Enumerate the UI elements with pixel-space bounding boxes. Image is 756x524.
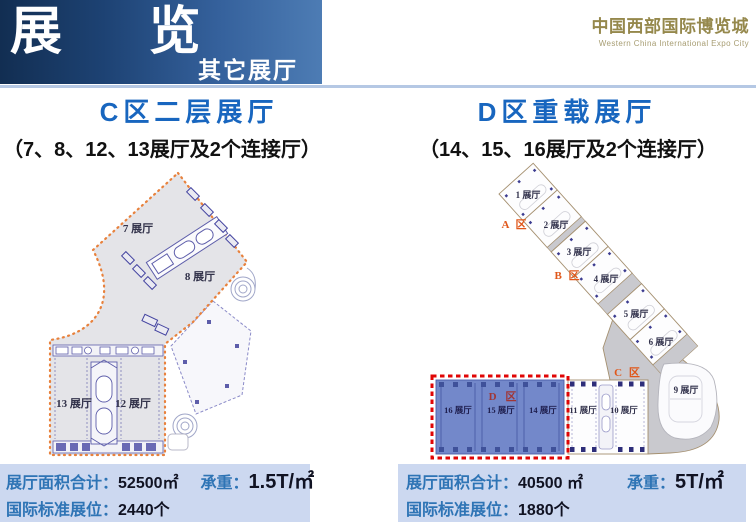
d-stats-line2: 国际标准展位：1880个: [406, 499, 746, 523]
d-load-value: 5T/㎡: [675, 471, 724, 493]
hall9-label: 9 展厅: [674, 385, 699, 395]
d-zone-floorplan-map: 1 展厅 2 展厅 3 展厅 4 展厅 5 展厅 6 展厅 9 展厅 10 展厅…: [420, 162, 750, 462]
hall6-label: 6 展厅: [649, 337, 674, 347]
page-subtitle-tab: 其它展厅: [198, 51, 298, 85]
d-zone-subtitle: （14、15、16展厅及2个连接厅）: [386, 133, 750, 162]
hall2-label: 2 展厅: [544, 220, 569, 230]
hall16-label: 16 展厅: [444, 405, 472, 415]
logo-english-name: Western China International Expo City: [592, 39, 750, 48]
hall12-label: 12 展厅: [115, 397, 151, 410]
d-area-label: 展厅面积合计：: [406, 475, 518, 492]
c-stats-line1: 展厅面积合计：52500㎡承重：1.5T/㎡: [6, 470, 310, 496]
d-stats-line1: 展厅面积合计：40500 ㎡承重：5T/㎡: [406, 470, 746, 496]
hall11-label: 11 展厅: [569, 405, 597, 415]
zone-c-label: C 区: [614, 366, 642, 379]
d-booth-label: 国际标准展位：: [406, 502, 518, 519]
d-zone-title: D区重载展厅: [378, 92, 756, 129]
c-area-value: 52500㎡: [118, 475, 179, 492]
c-zone-title: C区二层展厅: [0, 92, 378, 129]
d-zone-stats-bar: 展厅面积合计：40500 ㎡承重：5T/㎡ 国际标准展位：1880个: [398, 464, 746, 522]
hall5-label: 5 展厅: [624, 309, 649, 319]
header-banner: 展 览 其它展厅: [0, 0, 322, 84]
hall1-label: 1 展厅: [516, 190, 541, 200]
hall13-label: 13 展厅: [56, 397, 92, 410]
ramp-exit-pad: [168, 434, 188, 450]
c-booth-value: 2440个: [118, 502, 170, 519]
hall3-label: 3 展厅: [567, 247, 592, 257]
expo-city-logo: 中国西部国际博览城 Western China International Ex…: [592, 12, 750, 48]
d-zone-highlight: [432, 376, 568, 458]
hall15-label: 15 展厅: [487, 405, 515, 415]
d-area-value: 40500 ㎡: [518, 475, 583, 492]
c-load-label: 承重：: [201, 475, 249, 492]
c-zone-stats-bar: 展厅面积合计：52500㎡承重：1.5T/㎡ 国际标准展位：2440个: [0, 464, 310, 522]
hall-9-shape: [658, 363, 717, 439]
c-booth-label: 国际标准展位：: [6, 502, 118, 519]
zone-d-label: D 区: [489, 390, 520, 403]
c-stats-line2: 国际标准展位：2440个: [6, 499, 310, 523]
hall7-label: 7 展厅: [123, 222, 153, 235]
c-zone-subtitle: （7、8、12、13展厅及2个连接厅）: [0, 133, 324, 162]
zone-a-label: A 区: [501, 218, 528, 231]
hall4-label: 4 展厅: [594, 274, 619, 284]
c-load-value: 1.5T/㎡: [249, 471, 315, 493]
hall10-label: 10 展厅: [610, 405, 638, 415]
c-area-label: 展厅面积合计：: [6, 475, 118, 492]
c-zone-floorplan-map: 7 展厅 8 展厅 13 展厅 12 展厅: [25, 162, 315, 462]
logo-chinese-name: 中国西部国际博览城: [592, 12, 750, 37]
d-load-label: 承重：: [627, 475, 675, 492]
hall14-label: 14 展厅: [529, 405, 557, 415]
d-booth-value: 1880个: [518, 502, 570, 519]
header-divider-line: [0, 85, 756, 88]
c-central-connector: [91, 360, 117, 446]
zone-b-label: B 区: [554, 269, 581, 282]
hall-10-11-band: [568, 380, 648, 454]
hall8-label: 8 展厅: [185, 270, 215, 283]
